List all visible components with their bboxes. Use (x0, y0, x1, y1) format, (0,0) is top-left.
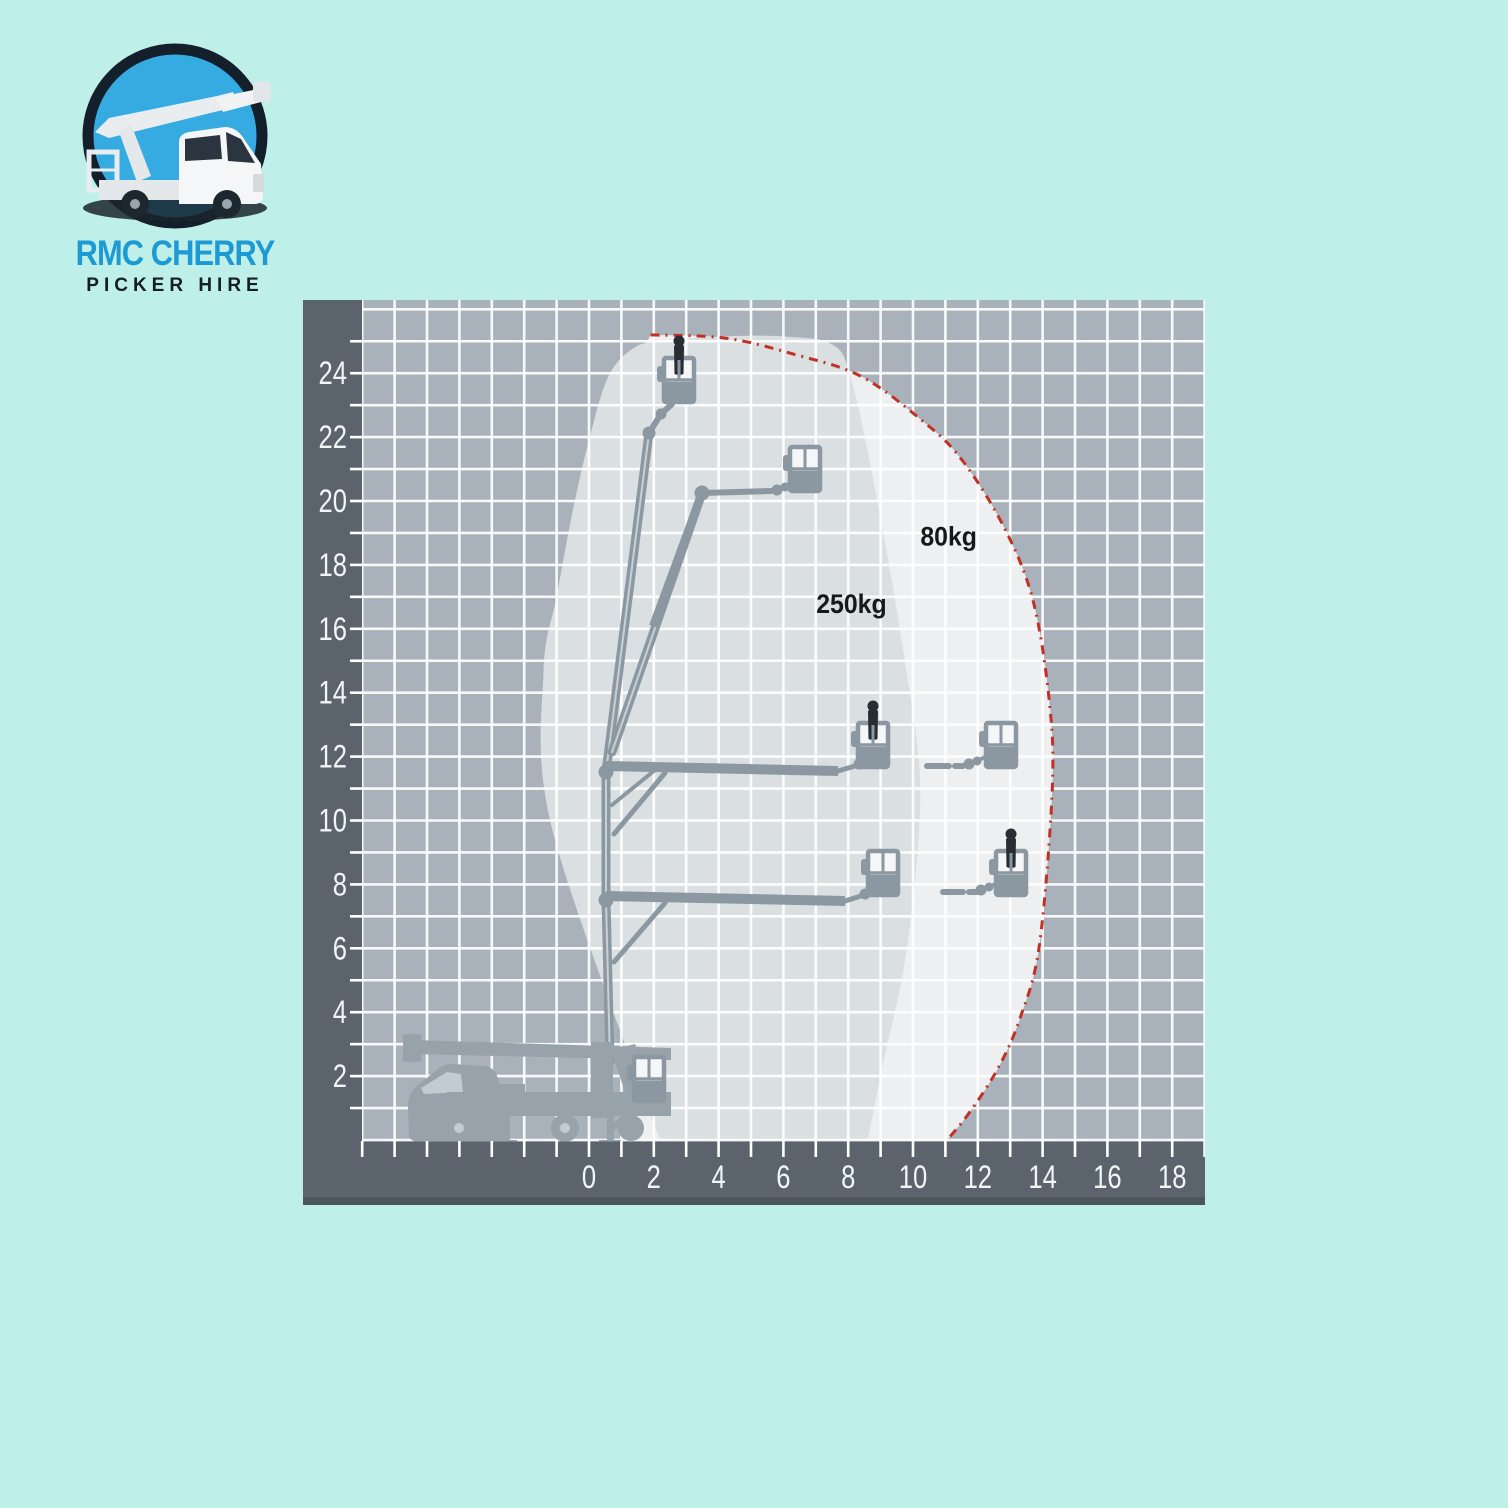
y-tick-label: 24 (319, 357, 347, 392)
brand-logo: RMC CHERRY PICKER HIRE (52, 36, 298, 297)
y-tick-label: 8 (333, 868, 347, 903)
truck-wheel (618, 1115, 644, 1141)
x-tick-label: 10 (899, 1160, 927, 1195)
x-tick-label: 6 (776, 1160, 790, 1195)
x-tick-label: 2 (647, 1160, 661, 1195)
basket-12m-far (979, 723, 1016, 767)
logo-title: RMC CHERRY (67, 234, 283, 274)
basket-20m (783, 447, 820, 491)
basket-8m-near (861, 851, 898, 895)
x-tick-label: 14 (1028, 1160, 1056, 1195)
y-tick-label: 18 (319, 548, 347, 583)
x-tick-label: 16 (1093, 1160, 1121, 1195)
y-tick-label: 20 (319, 484, 347, 519)
y-tick-label: 12 (319, 740, 347, 775)
zone-label-250kg: 250kg (816, 590, 886, 619)
y-tick-label: 6 (333, 932, 347, 967)
page: RMC CHERRY PICKER HIRE (0, 0, 1508, 1508)
reach-diagram-svg: 250kg80kg 24681012141618202224 024681012… (303, 300, 1205, 1205)
logo-mark-cherry-picker-truck-icon (65, 36, 285, 232)
boom-20m-jib (702, 491, 771, 493)
x-tick-label: 12 (964, 1160, 992, 1195)
y-tick-label: 14 (319, 676, 347, 711)
y-tick-label: 22 (319, 420, 347, 455)
panel-bottom-edge (303, 1197, 1205, 1205)
x-tick-label: 8 (841, 1160, 855, 1195)
truck-outrigger (503, 1116, 510, 1142)
x-tick-label: 4 (711, 1160, 725, 1195)
x-tick-label: 18 (1158, 1160, 1186, 1195)
y-tick-label: 10 (319, 804, 347, 839)
zone-label-80kg: 80kg (920, 523, 977, 552)
reach-diagram: 250kg80kg 24681012141618202224 024681012… (303, 300, 1205, 1205)
x-tick-label: 0 (582, 1160, 596, 1195)
y-tick-label: 2 (333, 1059, 347, 1094)
truck-outrigger (607, 1116, 614, 1142)
truck-pedestal (591, 1042, 613, 1118)
logo-subtitle: PICKER HIRE (52, 275, 298, 297)
y-tick-label: 16 (319, 612, 347, 647)
y-tick-label: 4 (333, 996, 347, 1031)
basket-stowed (627, 1057, 664, 1101)
